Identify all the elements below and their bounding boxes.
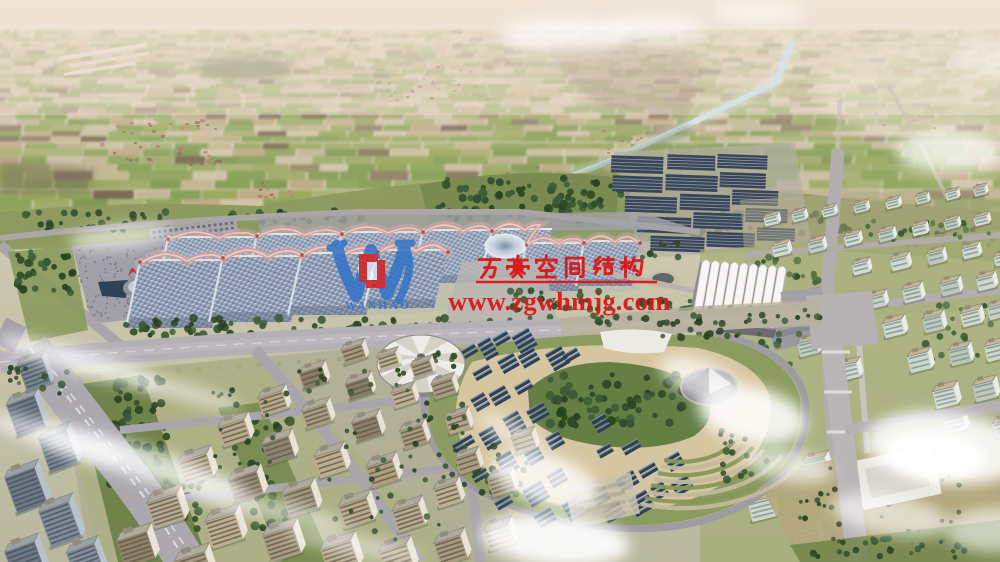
svg-text:WANHAO: WANHAO <box>345 300 411 312</box>
svg-text:www.zgwhmjg.com: www.zgwhmjg.com <box>448 286 670 316</box>
